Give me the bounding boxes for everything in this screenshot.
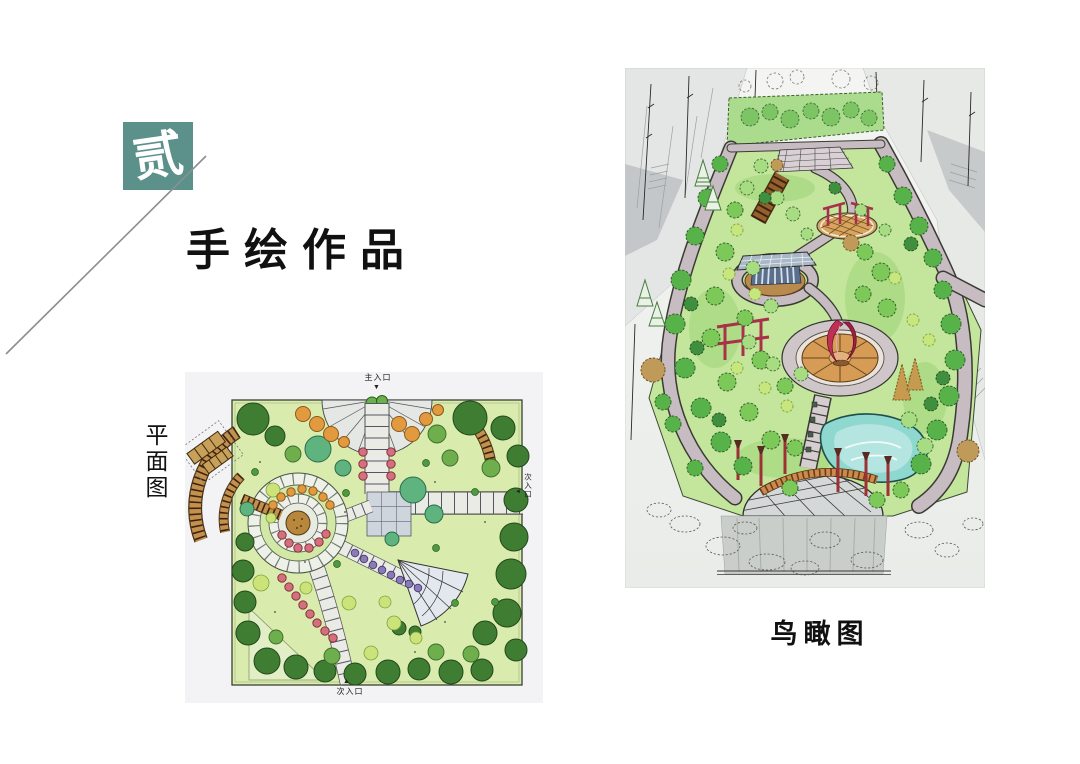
aerial-pie-plaza [782, 320, 898, 396]
plan-right-entrance-label: 次入口 [524, 473, 532, 499]
plan-main-entrance-label: 主入口 [357, 374, 399, 382]
slide: { "slide": { "background": "#ffffff" }, … [0, 0, 1080, 764]
page-title: 手绘作品 [186, 214, 418, 278]
aerial-drawing [625, 68, 985, 588]
aerial-caption: 鸟瞰图 [745, 612, 895, 651]
aerial-figure [625, 68, 985, 588]
plan-caption: 平面图 [137, 423, 171, 501]
diagonal-divider [0, 150, 212, 358]
plan-figure: 主入口 ▼ ◄ 次入口 ▲ 次入口 [185, 372, 543, 703]
arrow-up-icon: ▲ [343, 678, 350, 685]
arrow-down-icon: ▼ [373, 384, 380, 391]
plan-drawing [185, 372, 543, 703]
arrow-left-icon: ◄ [515, 489, 521, 495]
aerial-net-plaza [775, 147, 853, 172]
plan-bottom-entrance-label: 次入口 [330, 688, 370, 696]
divider-line [6, 156, 206, 354]
